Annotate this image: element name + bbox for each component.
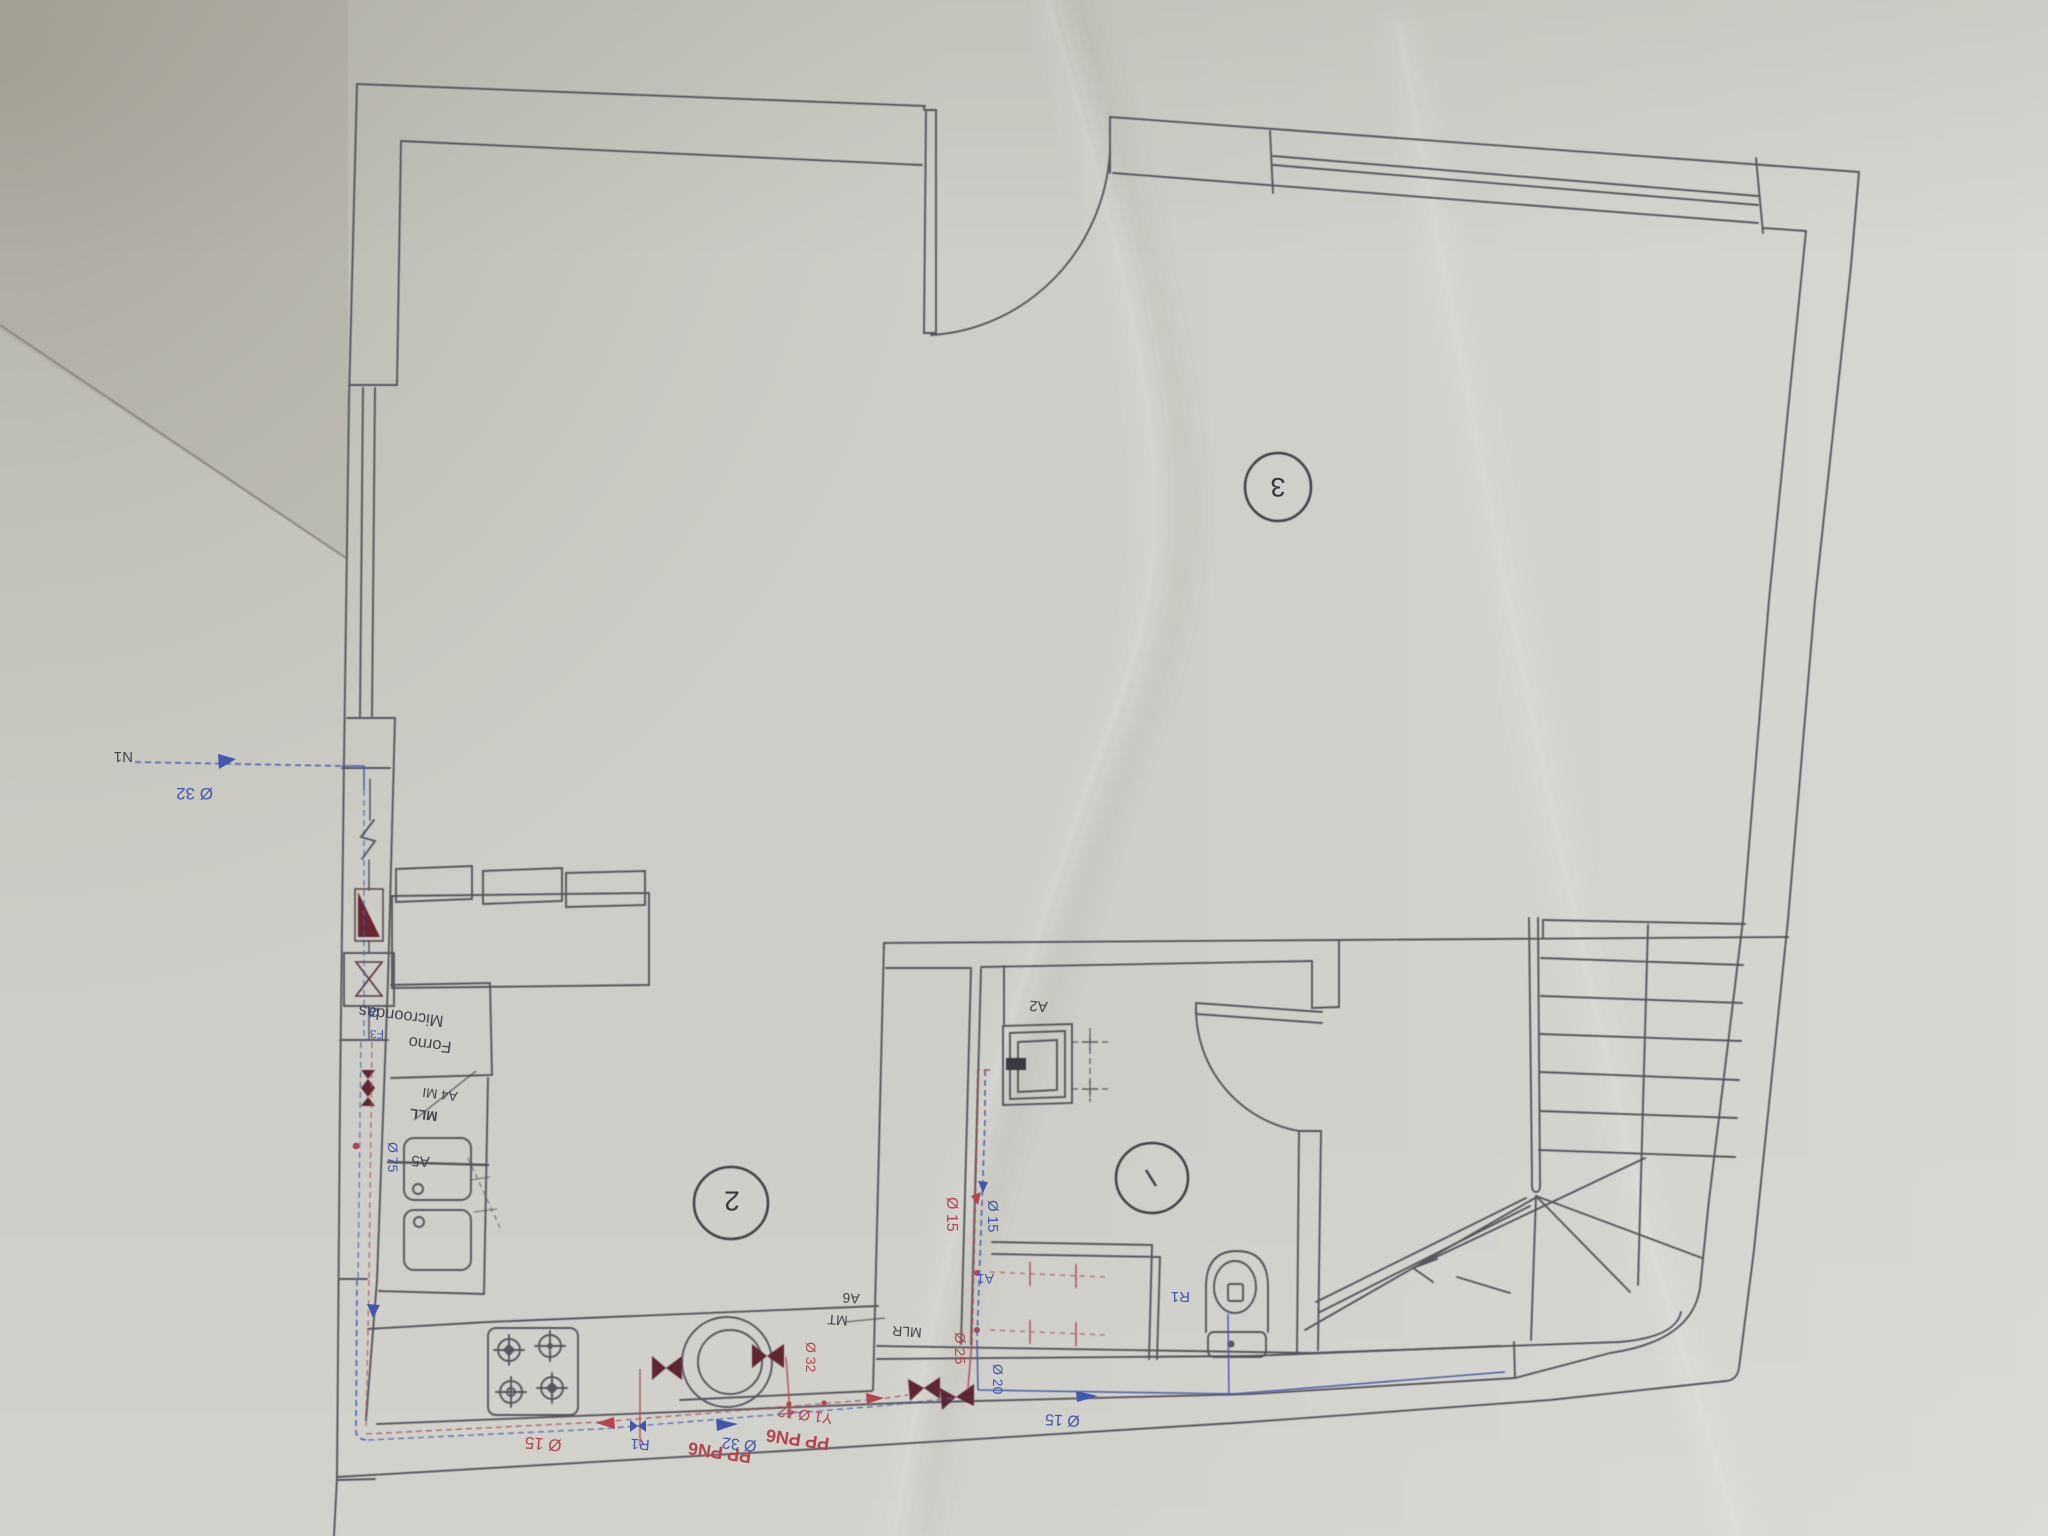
svg-text:A6: A6 bbox=[842, 1290, 860, 1307]
svg-text:Ø 20: Ø 20 bbox=[990, 1364, 1006, 1395]
svg-text:A2: A2 bbox=[1029, 997, 1049, 1015]
svg-text:Ø 25: Ø 25 bbox=[951, 1332, 968, 1365]
svg-text:A1: A1 bbox=[977, 1271, 994, 1287]
svg-text:Ø 15: Ø 15 bbox=[524, 1433, 562, 1455]
svg-text:R1: R1 bbox=[630, 1435, 650, 1453]
svg-text:Ø 32: Ø 32 bbox=[176, 784, 213, 803]
svg-text:A5: A5 bbox=[411, 1152, 431, 1170]
svg-text:Ø 75: Ø 75 bbox=[385, 1142, 401, 1173]
svg-text:2: 2 bbox=[724, 1186, 740, 1217]
svg-text:3: 3 bbox=[1270, 472, 1285, 502]
svg-text:Ø 32: Ø 32 bbox=[721, 1433, 757, 1454]
svg-text:Ø 32: Ø 32 bbox=[803, 1342, 819, 1373]
svg-text:Ø 15: Ø 15 bbox=[1045, 1410, 1081, 1429]
svg-text:MLR: MLR bbox=[892, 1323, 923, 1341]
svg-text:Ø 15: Ø 15 bbox=[943, 1197, 960, 1232]
svg-text:MT: MT bbox=[826, 1312, 848, 1329]
svg-text:Ø 15: Ø 15 bbox=[984, 1200, 1001, 1233]
svg-text:N1: N1 bbox=[114, 748, 133, 765]
svg-text:F3: F3 bbox=[370, 1027, 384, 1041]
svg-text:R1: R1 bbox=[1171, 1288, 1190, 1305]
